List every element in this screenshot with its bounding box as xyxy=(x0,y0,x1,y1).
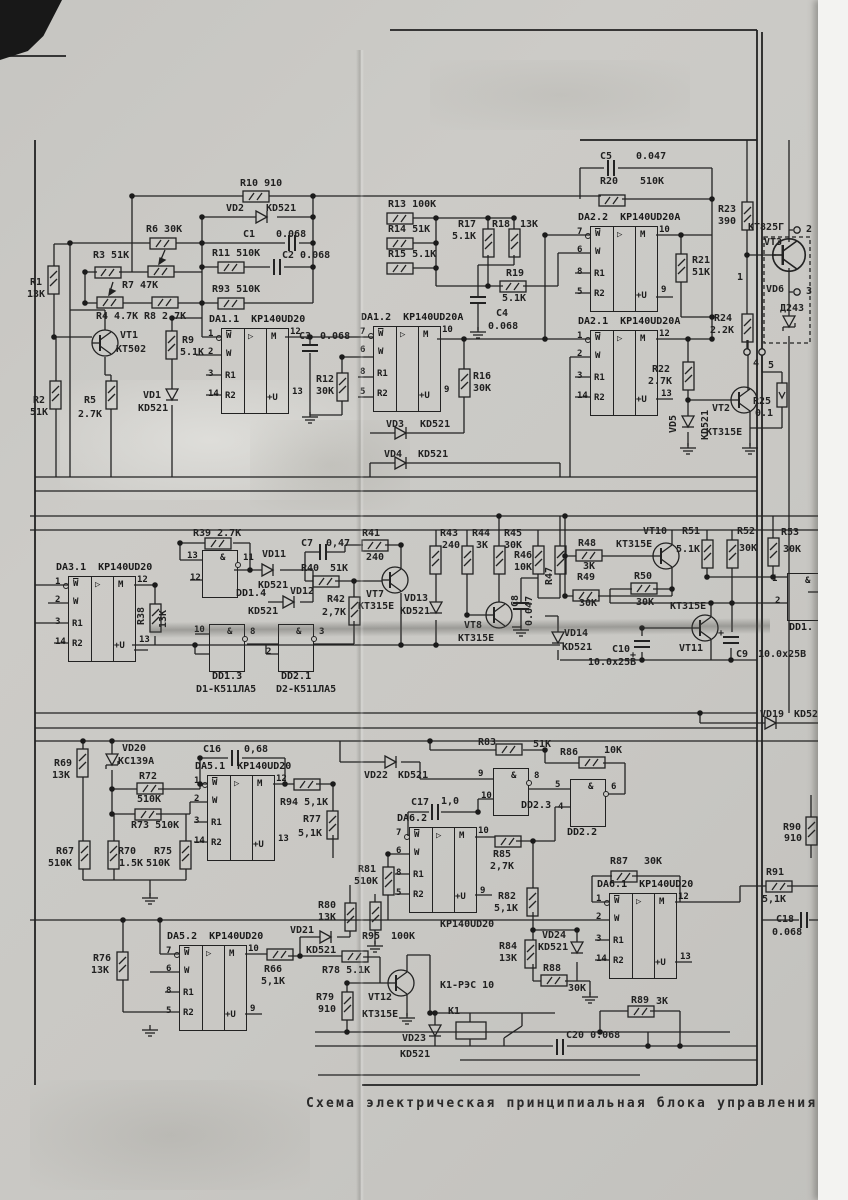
opamp-power-label: +U xyxy=(655,958,666,968)
component-label: C8 xyxy=(510,595,521,607)
opamp-m: M xyxy=(271,332,276,342)
gate-name: DD2.1 xyxy=(281,671,311,682)
opamp-power-label: +U xyxy=(636,395,647,405)
opamp-triangle: ▷ xyxy=(248,332,253,342)
component-label: R51 xyxy=(682,526,700,537)
component-label: R83 xyxy=(478,737,496,748)
component-label: R3 51K xyxy=(93,250,129,261)
opamp-name: DA6.1 KP140UD20 xyxy=(597,879,693,890)
component-label: 10K xyxy=(604,745,622,756)
opamp-pin: 13 xyxy=(661,389,672,399)
opamp-r1: R1 xyxy=(72,619,83,629)
opamp-name: DA5.1 KP140UD20 xyxy=(195,761,291,772)
component-label: R43 xyxy=(440,528,458,539)
gate-output-bubble xyxy=(235,562,241,568)
component-label: C17 xyxy=(411,797,429,808)
component-label: 30K xyxy=(783,544,801,555)
component-label: KD521 xyxy=(418,449,448,460)
component-label: KD521 xyxy=(138,403,168,414)
component-label: 2,7K xyxy=(322,607,346,618)
component-label: R42 xyxy=(327,594,345,605)
opamp-m: M xyxy=(659,897,664,907)
opamp-r2: R2 xyxy=(613,956,624,966)
component-label: R15 5.1K xyxy=(388,249,436,260)
component-label: 4 xyxy=(753,358,759,369)
component-label: 10.0x25В xyxy=(588,657,636,668)
opamp-pin: 6 xyxy=(166,964,171,974)
component-label: R52 xyxy=(737,526,755,537)
component-label: C1 xyxy=(243,229,255,240)
component-label: 30K xyxy=(636,597,654,608)
component-label: R9 xyxy=(182,335,194,346)
component-label: R16 xyxy=(473,371,491,382)
component-label: R67 xyxy=(56,846,74,857)
opamp-pin: 6 xyxy=(577,245,582,255)
component-label: 5 xyxy=(768,360,774,371)
opamp-r1: R1 xyxy=(594,269,605,279)
gate-pin: 5 xyxy=(555,780,560,790)
component-label: R89 xyxy=(631,995,649,1006)
component-label: R48 xyxy=(578,538,596,549)
opamp-power-label: +U xyxy=(455,892,466,902)
gate-output-bubble xyxy=(526,780,532,786)
component-label: K1-РЭС 10 xyxy=(440,980,494,991)
component-label: 1.5K xyxy=(119,858,143,869)
component-label: R21 xyxy=(692,255,710,266)
component-label: 30K xyxy=(316,386,334,397)
opamp-pin: 2 xyxy=(596,912,601,922)
opamp-m: M xyxy=(640,230,645,240)
component-label: VD23 xyxy=(402,1033,426,1044)
component-label: 5.1K xyxy=(676,544,700,555)
component-label: 13K xyxy=(520,219,538,230)
component-label: 51K xyxy=(692,267,710,278)
gate-pin: 2 xyxy=(775,596,780,606)
opamp-triangle: ▷ xyxy=(617,334,622,344)
component-label: VD19 xyxy=(760,709,784,720)
component-label: KD521 xyxy=(538,942,568,953)
component-label: 510K xyxy=(146,858,170,869)
opamp-inv-input: W xyxy=(414,830,419,840)
component-label: R39 2.7K xyxy=(193,528,241,539)
opamp-r1: R1 xyxy=(613,936,624,946)
gate-pin: 6 xyxy=(611,782,616,792)
component-label: KD521 xyxy=(562,642,592,653)
opamp-m: M xyxy=(640,334,645,344)
opamp-pin: 2 xyxy=(577,349,582,359)
component-label: 13K xyxy=(91,965,109,976)
opamp-pin: 1 xyxy=(194,776,199,786)
component-label: 3K xyxy=(656,996,668,1007)
opamp-r1: R1 xyxy=(413,870,424,880)
opamp-r1: R1 xyxy=(183,988,194,998)
opamp-input: W xyxy=(226,349,231,359)
opamp-pin: 9 xyxy=(250,1004,255,1014)
component-label: + xyxy=(630,650,636,661)
opamp-triangle: ▷ xyxy=(400,330,405,340)
opamp-pin: 14 xyxy=(208,389,219,399)
component-label: C2 0.068 xyxy=(282,250,330,261)
component-label: VD6 xyxy=(766,284,784,295)
component-label: 0.1 xyxy=(755,408,773,419)
component-label: VD3 xyxy=(386,419,404,430)
component-label: 13K xyxy=(27,289,45,300)
component-label: KT315E xyxy=(362,1009,398,1020)
component-label: R91 xyxy=(766,867,784,878)
opamp-r2: R2 xyxy=(211,838,222,848)
component-label: K1 xyxy=(448,1006,460,1017)
gate-name: DD2.2 xyxy=(567,827,597,838)
component-label: 30K xyxy=(568,983,586,994)
opamp-pin: 1 xyxy=(55,577,60,587)
component-label: R69 xyxy=(54,758,72,769)
opamp-pin: 10 xyxy=(478,826,489,836)
opamp-inv-bubble xyxy=(404,834,410,840)
opamp-m: M xyxy=(423,330,428,340)
component-label: R1 xyxy=(30,277,42,288)
component-label: R49 xyxy=(577,572,595,583)
component-label: 0,47 xyxy=(326,538,350,549)
opamp-m: M xyxy=(459,831,464,841)
logic-gate-DD2.2: &546 xyxy=(570,779,606,827)
component-label: Д243 xyxy=(780,303,804,314)
component-label: 2.7K xyxy=(78,409,102,420)
opamp-pin: 10 xyxy=(442,325,453,335)
component-label: R40 xyxy=(301,563,319,574)
gate-pin: 12 xyxy=(190,573,201,583)
component-label: KD521 xyxy=(400,606,430,617)
component-label: R80 xyxy=(318,900,336,911)
opamp-r1: R1 xyxy=(594,373,605,383)
component-label: VT7 xyxy=(366,589,384,600)
opamp-block-DA6.1: WWR1R2▷M+U123141213 xyxy=(609,893,677,979)
opamp-power-label: +U xyxy=(253,840,264,850)
component-label: C18 xyxy=(776,914,794,925)
opamp-input: W xyxy=(378,347,383,357)
gate-pin: 4 xyxy=(558,802,563,812)
component-label: 13K xyxy=(318,912,336,923)
component-label: C9 xyxy=(736,649,748,660)
component-label: 2 xyxy=(806,224,812,235)
component-label: R45 xyxy=(504,528,522,539)
component-label: 5,1K xyxy=(261,976,285,987)
component-label: VD13 xyxy=(404,593,428,604)
opamp-inv-bubble xyxy=(604,900,610,906)
opamp-pin: 2 xyxy=(194,794,199,804)
opamp-inv-bubble xyxy=(216,335,222,341)
component-label: R75 xyxy=(154,846,172,857)
opamp-input: W xyxy=(595,351,600,361)
component-label: KP140UD20 xyxy=(440,919,494,930)
gate-pin: 13 xyxy=(187,551,198,561)
opamp-r1: R1 xyxy=(211,818,222,828)
component-label: R5 xyxy=(84,395,96,406)
component-label: R53 xyxy=(781,527,799,538)
opamp-name: DA2.2 KP140UD20A xyxy=(578,212,680,223)
component-label: 910 xyxy=(784,833,802,844)
component-label: VT11 xyxy=(679,643,703,654)
opamp-pin: 5 xyxy=(396,888,401,898)
component-label: C5 xyxy=(600,151,612,162)
component-label: R73 510K xyxy=(131,820,179,831)
component-label: R79 xyxy=(316,992,334,1003)
opamp-pin: 8 xyxy=(577,267,582,277)
component-label: VD11 xyxy=(262,549,286,560)
component-label: 910 xyxy=(318,1004,336,1015)
opamp-inv-input: W xyxy=(184,948,189,958)
component-label: KD521 xyxy=(420,419,450,430)
gate-name: DD1. xyxy=(789,622,813,633)
component-label: 3 xyxy=(806,286,812,297)
opamp-pin: 13 xyxy=(139,635,150,645)
opamp-pin: 7 xyxy=(166,946,171,956)
opamp-name: DA3.1 KP140UD20 xyxy=(56,562,152,573)
component-label: 0.068 xyxy=(320,331,350,342)
component-label: 0.047 xyxy=(636,151,666,162)
component-label: KT315E xyxy=(616,539,652,550)
opamp-block-DA5.2: WWR1R2▷M+U7685109 xyxy=(179,945,247,1031)
component-label: R17 xyxy=(458,219,476,230)
component-label: 51K xyxy=(330,563,348,574)
component-label: R11 510K xyxy=(212,248,260,259)
opamp-input: W xyxy=(614,914,619,924)
component-label: C4 xyxy=(496,308,508,319)
component-label: 0.068 xyxy=(276,229,306,240)
gate-pin: 1 xyxy=(772,574,777,584)
component-label: VD20 xyxy=(122,743,146,754)
opamp-block-DA2.2: WWR1R2▷M+U7685109 xyxy=(590,226,658,312)
opamp-pin: 3 xyxy=(208,369,213,379)
component-label: 30K xyxy=(579,598,597,609)
opamp-inv-input: W xyxy=(595,333,600,343)
opamp-inv-input: W xyxy=(226,331,231,341)
component-label: 5,1K xyxy=(298,828,322,839)
component-label: 30K xyxy=(644,856,662,867)
opamp-inv-bubble xyxy=(202,782,208,788)
opamp-inv-bubble xyxy=(585,233,591,239)
opamp-input: W xyxy=(414,848,419,858)
opamp-power-label: +U xyxy=(636,291,647,301)
component-label: 1 xyxy=(737,272,743,283)
component-label: KT315E xyxy=(670,601,706,612)
gate-pin: 9 xyxy=(478,769,483,779)
opamp-pin: 12 xyxy=(659,329,670,339)
component-label: 30K xyxy=(473,383,491,394)
component-label: R38 xyxy=(136,607,147,625)
component-label: 5.1K xyxy=(180,347,204,358)
opamp-triangle: ▷ xyxy=(95,580,100,590)
opamp-input: W xyxy=(73,597,78,607)
opamp-m: M xyxy=(118,580,123,590)
opamp-pin: 8 xyxy=(396,868,401,878)
component-label: R4 4.7K xyxy=(96,311,138,322)
opamp-pin: 9 xyxy=(661,285,666,295)
gate-and-symbol: & xyxy=(588,782,593,792)
gate-pin: 10 xyxy=(481,791,492,801)
component-label: 3K xyxy=(583,561,595,572)
component-label: R8 2.7K xyxy=(144,311,186,322)
opamp-pin: 5 xyxy=(577,287,582,297)
logic-gate-DD1.4: &131211 xyxy=(202,550,238,598)
opamp-pin: 1 xyxy=(577,331,582,341)
opamp-name: DA2.1 KP140UD20A xyxy=(578,316,680,327)
opamp-r1: R1 xyxy=(225,371,236,381)
component-label: D1-К511ЛА5 xyxy=(196,684,256,695)
opamp-block-DA1.1: WWR1R2▷M+U123141213 xyxy=(221,328,289,414)
opamp-pin: 3 xyxy=(577,371,582,381)
opamp-triangle: ▷ xyxy=(617,230,622,240)
opamp-pin: 12 xyxy=(137,575,148,585)
opamp-pin: 9 xyxy=(444,385,449,395)
component-label: R50 xyxy=(634,571,652,582)
opamp-pin: 5 xyxy=(166,1006,171,1016)
component-label: 5.1K xyxy=(452,231,476,242)
opamp-name: DA5.2 KP140UD20 xyxy=(167,931,263,942)
component-label: КТ825Г xyxy=(748,222,784,233)
component-label: R87 xyxy=(610,856,628,867)
component-label: D2-К511ЛА5 xyxy=(276,684,336,695)
component-label: R6 30K xyxy=(146,224,182,235)
component-label: 10K xyxy=(514,562,532,573)
component-label: R13 100K xyxy=(388,199,436,210)
component-label: 5,1K xyxy=(494,903,518,914)
component-label: 3K xyxy=(476,540,488,551)
opamp-pin: 1 xyxy=(596,894,601,904)
gate-pin: 11 xyxy=(243,553,254,563)
component-label: KD521 xyxy=(400,1049,430,1060)
opamp-pin: 3 xyxy=(194,816,199,826)
opamp-inv-input: W xyxy=(212,778,217,788)
component-label: KT315E xyxy=(706,427,742,438)
component-label: R95 xyxy=(362,931,380,942)
component-label: 390 xyxy=(718,216,736,227)
opamp-inv-input: W xyxy=(614,896,619,906)
component-label: VT10 xyxy=(643,526,667,537)
opamp-inv-bubble xyxy=(368,333,374,339)
opamp-pin: 2 xyxy=(208,347,213,357)
opamp-m: M xyxy=(257,779,262,789)
component-label: 10.0x25В xyxy=(758,649,806,660)
component-label: R24 xyxy=(714,313,732,324)
scanner-edge-strip xyxy=(818,0,848,1200)
component-label: KT502 xyxy=(116,344,146,355)
scanned-schematic-page: R10 910VD2KD521C10.068R6 30KR3 51KR7 47K… xyxy=(0,0,848,1200)
component-label: R47 xyxy=(544,567,555,585)
component-label: R12 xyxy=(316,374,334,385)
component-label: 13K xyxy=(499,953,517,964)
opamp-inv-input: W xyxy=(378,329,383,339)
component-label: VD12 xyxy=(290,586,314,597)
opamp-pin: 7 xyxy=(577,227,582,237)
component-label: 2.2K xyxy=(710,325,734,336)
component-label: VT2 xyxy=(712,403,730,414)
opamp-pin: 10 xyxy=(248,944,259,954)
opamp-name: DA6.2 xyxy=(397,813,427,824)
component-label: 0.068 xyxy=(488,321,518,332)
component-label: R94 5,1K xyxy=(280,797,328,808)
opamp-pin: 2 xyxy=(55,595,60,605)
component-label: R82 xyxy=(498,891,516,902)
opamp-r2: R2 xyxy=(377,389,388,399)
component-label: C20 0.068 xyxy=(566,1030,620,1041)
component-label: R85 xyxy=(493,849,511,860)
component-label: R70 xyxy=(118,846,136,857)
component-label: R10 910 xyxy=(240,178,282,189)
opamp-triangle: ▷ xyxy=(234,779,239,789)
component-label: R18 xyxy=(492,219,510,230)
gate-and-symbol: & xyxy=(805,576,810,586)
gate-name: DD1.4 xyxy=(236,588,266,599)
opamp-r1: R1 xyxy=(377,369,388,379)
opamp-pin: 13 xyxy=(292,387,303,397)
component-label: VT3 xyxy=(764,237,782,248)
component-label: R66 xyxy=(264,964,282,975)
opamp-pin: 14 xyxy=(194,836,205,846)
opamp-input: W xyxy=(184,966,189,976)
opamp-pin: 13 xyxy=(680,952,691,962)
gate-output-bubble xyxy=(603,791,609,797)
component-label: 240 xyxy=(366,552,384,563)
opamp-r2: R2 xyxy=(183,1008,194,1018)
opamp-pin: 14 xyxy=(596,954,607,964)
component-label: R46 xyxy=(514,550,532,561)
opamp-inv-bubble xyxy=(585,337,591,343)
opamp-triangle: ▷ xyxy=(636,897,641,907)
gate-name: DD1.3 xyxy=(212,671,242,682)
opamp-r2: R2 xyxy=(594,289,605,299)
component-label: VT12 xyxy=(368,992,392,1003)
opamp-r2: R2 xyxy=(413,890,424,900)
opamp-pin: 3 xyxy=(596,934,601,944)
component-label: R23 xyxy=(718,204,736,215)
opamp-block-DA1.2: WWR1R2▷M+U7685109 xyxy=(373,326,441,412)
component-label: 0.068 xyxy=(772,927,802,938)
component-label: KD521 xyxy=(398,770,428,781)
component-label: VD24 xyxy=(542,930,566,941)
component-label: 510K xyxy=(640,176,664,187)
opamp-power-label: +U xyxy=(419,391,430,401)
component-label: R72 xyxy=(139,771,157,782)
opamp-name: DA1.2 KP140UD20A xyxy=(361,312,463,323)
opamp-power-label: +U xyxy=(267,393,278,403)
component-label: KD521 xyxy=(306,945,336,956)
component-label: R7 47K xyxy=(122,280,158,291)
component-label: C7 xyxy=(301,538,313,549)
component-label: R20 xyxy=(600,176,618,187)
component-label: 30K xyxy=(739,543,757,554)
component-label: 0,68 xyxy=(244,744,268,755)
component-label: C16 xyxy=(203,744,221,755)
opamp-pin: 12 xyxy=(678,892,689,902)
opamp-pin: 10 xyxy=(659,225,670,235)
component-label: VT1 xyxy=(120,330,138,341)
opamp-pin: 6 xyxy=(396,846,401,856)
gate-and-symbol: & xyxy=(220,553,225,563)
component-label: VD21 xyxy=(290,925,314,936)
component-label: 2,7K xyxy=(490,861,514,872)
component-label: R41 xyxy=(362,528,380,539)
opamp-pin: 14 xyxy=(577,391,588,401)
component-label: 51K xyxy=(30,407,48,418)
opamp-pin: 9 xyxy=(480,886,485,896)
component-label: R88 xyxy=(543,963,561,974)
component-label: R90 xyxy=(783,822,801,833)
gate-pin: 2 xyxy=(266,647,271,657)
component-label: C10 xyxy=(612,644,630,655)
opamp-m: M xyxy=(229,949,234,959)
schematic-caption: Схема электрическая принципиальная блока… xyxy=(306,1096,848,1111)
opamp-pin: 14 xyxy=(55,637,66,647)
